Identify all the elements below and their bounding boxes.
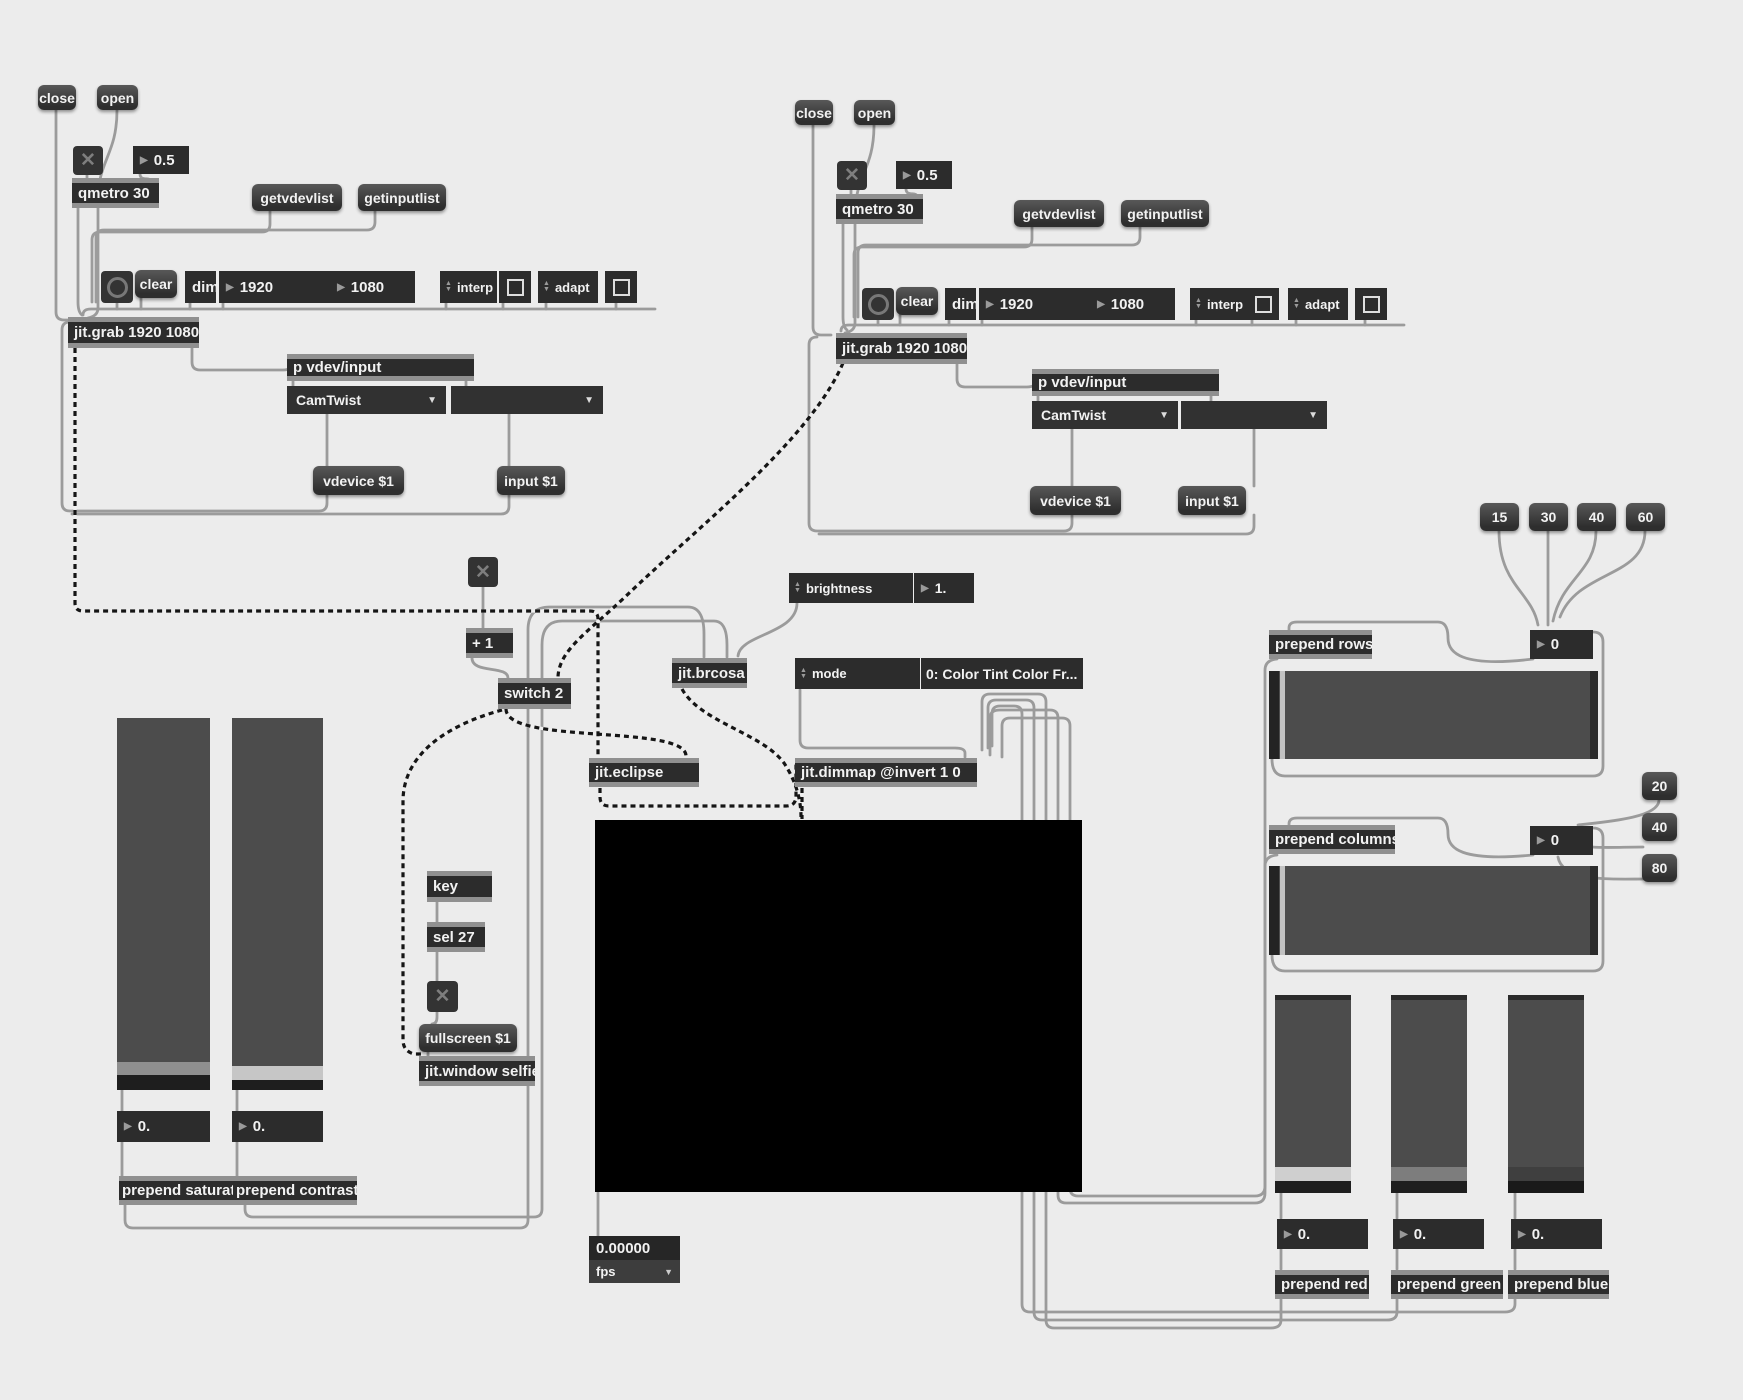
chevron-down-icon: ▼ bbox=[584, 395, 594, 406]
slider-knob-highlight bbox=[1280, 671, 1285, 759]
slider-track-end bbox=[1391, 995, 1467, 1000]
number-arrow-icon: ▶ bbox=[1518, 1229, 1526, 1240]
bang-button[interactable] bbox=[862, 288, 894, 320]
chevron-down-icon: ▼ bbox=[664, 1267, 673, 1277]
slider-knob[interactable] bbox=[1508, 1167, 1584, 1181]
close-message[interactable]: close bbox=[38, 85, 76, 110]
slider-track-end bbox=[117, 1075, 210, 1090]
jit-eclipse-object[interactable]: jit.eclipse bbox=[589, 758, 699, 787]
bang-button[interactable] bbox=[101, 271, 133, 303]
key-object[interactable]: key bbox=[427, 871, 492, 902]
spinner-icon: ▲▼ bbox=[445, 281, 452, 293]
device-menu[interactable]: CamTwist▼ bbox=[287, 386, 446, 414]
number-arrow-icon: ▶ bbox=[1097, 299, 1105, 310]
spinner-icon: ▲▼ bbox=[800, 668, 807, 680]
number-arrow-icon: ▶ bbox=[124, 1121, 132, 1132]
columns-number[interactable]: ▶0 bbox=[1530, 826, 1593, 855]
dim-height: 1080 bbox=[351, 279, 384, 296]
bang-circle-icon bbox=[107, 277, 128, 298]
checkbox-icon bbox=[1363, 296, 1380, 313]
slider-track-end bbox=[1275, 995, 1351, 1000]
green-number[interactable]: ▶0. bbox=[1393, 1219, 1484, 1249]
toggle-x-icon: ✕ bbox=[80, 149, 96, 172]
input-message[interactable]: input $1 bbox=[497, 466, 565, 495]
chevron-down-icon: ▼ bbox=[427, 395, 437, 406]
contrast-number[interactable]: ▶0. bbox=[232, 1111, 323, 1142]
blue-number[interactable]: ▶0. bbox=[1511, 1219, 1602, 1249]
slider-knob[interactable] bbox=[1275, 1167, 1351, 1181]
slider-track-end bbox=[1508, 1181, 1584, 1193]
slider-track-end bbox=[1508, 995, 1584, 1000]
slider-track-end bbox=[1391, 1181, 1467, 1193]
fps-value: 0.00000 bbox=[589, 1236, 680, 1260]
rows-preset-40[interactable]: 40 bbox=[1577, 503, 1616, 531]
contrast-slider[interactable] bbox=[232, 718, 323, 1090]
brightness-attrui[interactable]: ▲▼brightness bbox=[789, 573, 913, 603]
dim-number-pair[interactable]: ▶1920 ▶1080 bbox=[219, 271, 415, 303]
dim-height: 1080 bbox=[1111, 296, 1144, 313]
number-arrow-icon: ▶ bbox=[226, 282, 234, 293]
sel-object[interactable]: sel 27 bbox=[427, 922, 485, 952]
slider-track-end bbox=[1590, 671, 1598, 759]
getinputlist-message[interactable]: getinputlist bbox=[358, 184, 446, 211]
prepend-columns-object[interactable]: prepend columns bbox=[1269, 825, 1395, 854]
columns-slider[interactable] bbox=[1269, 866, 1598, 955]
rows-preset-15[interactable]: 15 bbox=[1480, 503, 1519, 531]
blue-slider[interactable] bbox=[1508, 995, 1584, 1193]
number-arrow-icon: ▶ bbox=[337, 282, 345, 293]
chevron-down-icon: ▼ bbox=[1159, 410, 1169, 421]
rate-number[interactable]: ▶0.5 bbox=[896, 161, 952, 189]
dim-width: 1920 bbox=[1000, 296, 1033, 313]
checkbox-icon bbox=[1255, 296, 1272, 313]
toggle-x-icon: ✕ bbox=[435, 985, 451, 1008]
prepend-red-object[interactable]: prepend red bbox=[1275, 1270, 1369, 1299]
getvdevlist-message[interactable]: getvdevlist bbox=[252, 184, 342, 211]
cols-preset-20[interactable]: 20 bbox=[1642, 772, 1677, 800]
getvdevlist-message[interactable]: getvdevlist bbox=[1014, 200, 1104, 227]
spinner-icon: ▲▼ bbox=[1293, 298, 1300, 310]
rows-preset-60[interactable]: 60 bbox=[1626, 503, 1665, 531]
prepend-green-object[interactable]: prepend green bbox=[1391, 1270, 1503, 1299]
number-arrow-icon: ▶ bbox=[986, 299, 994, 310]
checkbox-icon bbox=[507, 279, 524, 296]
checkbox-icon bbox=[613, 279, 630, 296]
rows-preset-30[interactable]: 30 bbox=[1529, 503, 1568, 531]
spinner-icon: ▲▼ bbox=[1082, 668, 1083, 680]
toggle-x-icon: ✕ bbox=[475, 561, 491, 584]
dim-number-pair[interactable]: ▶1920 ▶1080 bbox=[979, 288, 1175, 320]
slider-knob[interactable] bbox=[1269, 866, 1279, 955]
fullscreen-toggle[interactable]: ✕ bbox=[427, 981, 458, 1012]
number-arrow-icon: ▶ bbox=[140, 155, 148, 166]
number-arrow-icon: ▶ bbox=[1537, 639, 1545, 650]
input-message[interactable]: input $1 bbox=[1178, 486, 1246, 515]
number-arrow-icon: ▶ bbox=[921, 583, 929, 594]
number-arrow-icon: ▶ bbox=[1400, 1229, 1408, 1240]
spinner-icon: ▲▼ bbox=[543, 281, 550, 293]
video-preview-window bbox=[595, 820, 1082, 1192]
dim-box[interactable]: dim bbox=[945, 288, 976, 320]
clear-message[interactable]: clear bbox=[896, 287, 938, 315]
slider-knob[interactable] bbox=[1269, 671, 1279, 759]
number-arrow-icon: ▶ bbox=[1537, 835, 1545, 846]
plus-one-object[interactable]: + 1 bbox=[466, 628, 513, 658]
metro-toggle[interactable]: ✕ bbox=[837, 161, 867, 190]
slider-knob-highlight bbox=[1280, 866, 1285, 955]
slider-knob[interactable] bbox=[1391, 1167, 1467, 1181]
saturation-number[interactable]: ▶0. bbox=[117, 1111, 210, 1142]
close-message[interactable]: close bbox=[795, 100, 833, 125]
cols-preset-80[interactable]: 80 bbox=[1642, 854, 1677, 882]
prepend-blue-object[interactable]: prepend blue bbox=[1508, 1270, 1609, 1299]
spinner-icon: ▲▼ bbox=[794, 582, 801, 594]
dim-box[interactable]: dim bbox=[185, 271, 216, 303]
rows-slider[interactable] bbox=[1269, 671, 1598, 759]
getinputlist-message[interactable]: getinputlist bbox=[1121, 200, 1209, 227]
interp-attrui[interactable]: ▲▼interp bbox=[1190, 288, 1247, 320]
red-slider[interactable] bbox=[1275, 995, 1351, 1193]
jit-grab-object[interactable]: jit.grab 1920 1080 bbox=[68, 317, 199, 348]
slider-knob[interactable] bbox=[117, 1062, 210, 1075]
interp-checkbox[interactable] bbox=[499, 271, 531, 303]
saturation-slider[interactable] bbox=[117, 718, 210, 1090]
qmetro-object[interactable]: qmetro 30 bbox=[836, 194, 923, 224]
vdevice-message[interactable]: vdevice $1 bbox=[1030, 486, 1121, 515]
jit-window-object[interactable]: jit.window selfie bbox=[419, 1056, 535, 1086]
prepend-contrast-object[interactable]: prepend contrast bbox=[233, 1176, 357, 1205]
cols-preset-40[interactable]: 40 bbox=[1642, 813, 1677, 841]
toggle-x-icon: ✕ bbox=[844, 164, 860, 187]
interp-attrui[interactable]: ▲▼interp bbox=[440, 271, 497, 303]
jit-dimmap-object[interactable]: jit.dimmap @invert 1 0 bbox=[795, 758, 977, 787]
red-number[interactable]: ▶0. bbox=[1277, 1219, 1368, 1249]
jit-grab-object[interactable]: jit.grab 1920 1080 bbox=[836, 333, 967, 364]
spinner-icon: ▲▼ bbox=[1195, 298, 1202, 310]
device-menu[interactable]: CamTwist▼ bbox=[1032, 401, 1178, 429]
slider-track-end bbox=[1275, 1181, 1351, 1193]
vdev-input-subpatch[interactable]: p vdev/input bbox=[287, 354, 474, 381]
switch-object[interactable]: switch 2 bbox=[498, 678, 571, 709]
switch-toggle[interactable]: ✕ bbox=[468, 557, 498, 587]
open-message[interactable]: open bbox=[854, 100, 895, 125]
chevron-down-icon: ▼ bbox=[1308, 410, 1318, 421]
green-slider[interactable] bbox=[1391, 995, 1467, 1193]
slider-knob[interactable] bbox=[232, 1066, 323, 1080]
input-menu[interactable]: ▼ bbox=[1181, 401, 1327, 429]
adapt-attrui[interactable]: ▲▼adapt bbox=[538, 271, 598, 303]
brightness-value[interactable]: ▶1. bbox=[914, 573, 974, 603]
fullscreen-message[interactable]: fullscreen $1 bbox=[419, 1024, 517, 1052]
mode-attrui[interactable]: ▲▼mode bbox=[795, 658, 920, 689]
adapt-attrui[interactable]: ▲▼adapt bbox=[1288, 288, 1348, 320]
number-arrow-icon: ▶ bbox=[1284, 1229, 1292, 1240]
adapt-checkbox[interactable] bbox=[605, 271, 637, 303]
mode-value-menu[interactable]: 0: Color Tint Color Fr...▲▼ bbox=[921, 658, 1083, 689]
vdev-input-subpatch[interactable]: p vdev/input bbox=[1032, 369, 1219, 396]
interp-checkbox[interactable] bbox=[1247, 288, 1279, 320]
prepend-saturation-object[interactable]: prepend saturation bbox=[119, 1176, 233, 1205]
fps-mode-select[interactable]: fps▼ bbox=[589, 1260, 680, 1283]
vdevice-message[interactable]: vdevice $1 bbox=[313, 466, 404, 495]
adapt-checkbox[interactable] bbox=[1355, 288, 1387, 320]
rate-number[interactable]: ▶0.5 bbox=[133, 146, 189, 174]
number-arrow-icon: ▶ bbox=[903, 170, 911, 181]
bang-circle-icon bbox=[868, 294, 889, 315]
rows-number[interactable]: ▶0 bbox=[1530, 630, 1593, 659]
input-menu[interactable]: ▼ bbox=[451, 386, 603, 414]
metro-toggle[interactable]: ✕ bbox=[73, 146, 103, 175]
slider-track-end bbox=[232, 1080, 323, 1090]
number-arrow-icon: ▶ bbox=[239, 1121, 247, 1132]
max-patch-canvas: close open ✕ ▶0.5 qmetro 30 getvdevlist … bbox=[0, 0, 1743, 1400]
qmetro-object[interactable]: qmetro 30 bbox=[72, 178, 159, 208]
jit-brcosa-object[interactable]: jit.brcosa bbox=[672, 658, 747, 688]
open-message[interactable]: open bbox=[97, 85, 138, 110]
dim-width: 1920 bbox=[240, 279, 273, 296]
clear-message[interactable]: clear bbox=[135, 270, 177, 298]
fpsgui[interactable]: 0.00000 fps▼ bbox=[589, 1236, 680, 1283]
slider-track-end bbox=[1590, 866, 1598, 955]
prepend-rows-object[interactable]: prepend rows bbox=[1269, 630, 1372, 659]
